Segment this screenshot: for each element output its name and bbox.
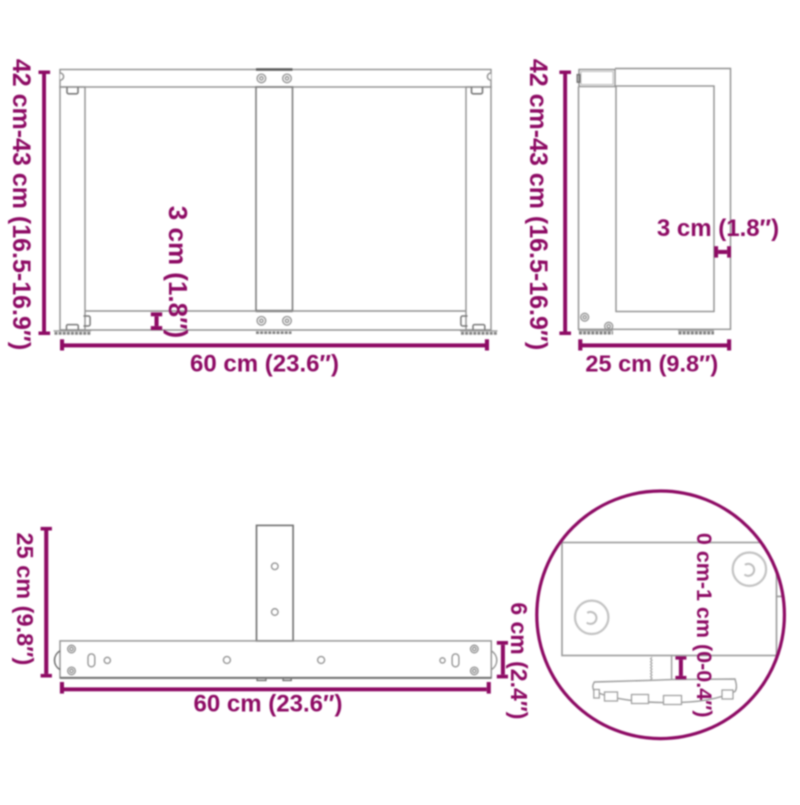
svg-text:60 cm (23.6″): 60 cm (23.6″) bbox=[194, 691, 343, 718]
svg-text:60 cm (23.6″): 60 cm (23.6″) bbox=[190, 351, 339, 378]
svg-text:3 cm (1.8″): 3 cm (1.8″) bbox=[163, 206, 193, 338]
svg-text:42 cm-43 cm (16.5-16.9″): 42 cm-43 cm (16.5-16.9″) bbox=[524, 59, 552, 350]
svg-text:25 cm (9.8″): 25 cm (9.8″) bbox=[12, 533, 38, 666]
svg-text:0 cm-1 cm (0-0.4″): 0 cm-1 cm (0-0.4″) bbox=[692, 533, 716, 718]
svg-text:25 cm (9.8″): 25 cm (9.8″) bbox=[585, 351, 718, 377]
svg-text:42 cm-43 cm (16.5-16.9″): 42 cm-43 cm (16.5-16.9″) bbox=[7, 59, 35, 350]
svg-text:6 cm (2.4″): 6 cm (2.4″) bbox=[506, 602, 532, 719]
svg-text:3 cm (1.8″): 3 cm (1.8″) bbox=[657, 215, 779, 242]
